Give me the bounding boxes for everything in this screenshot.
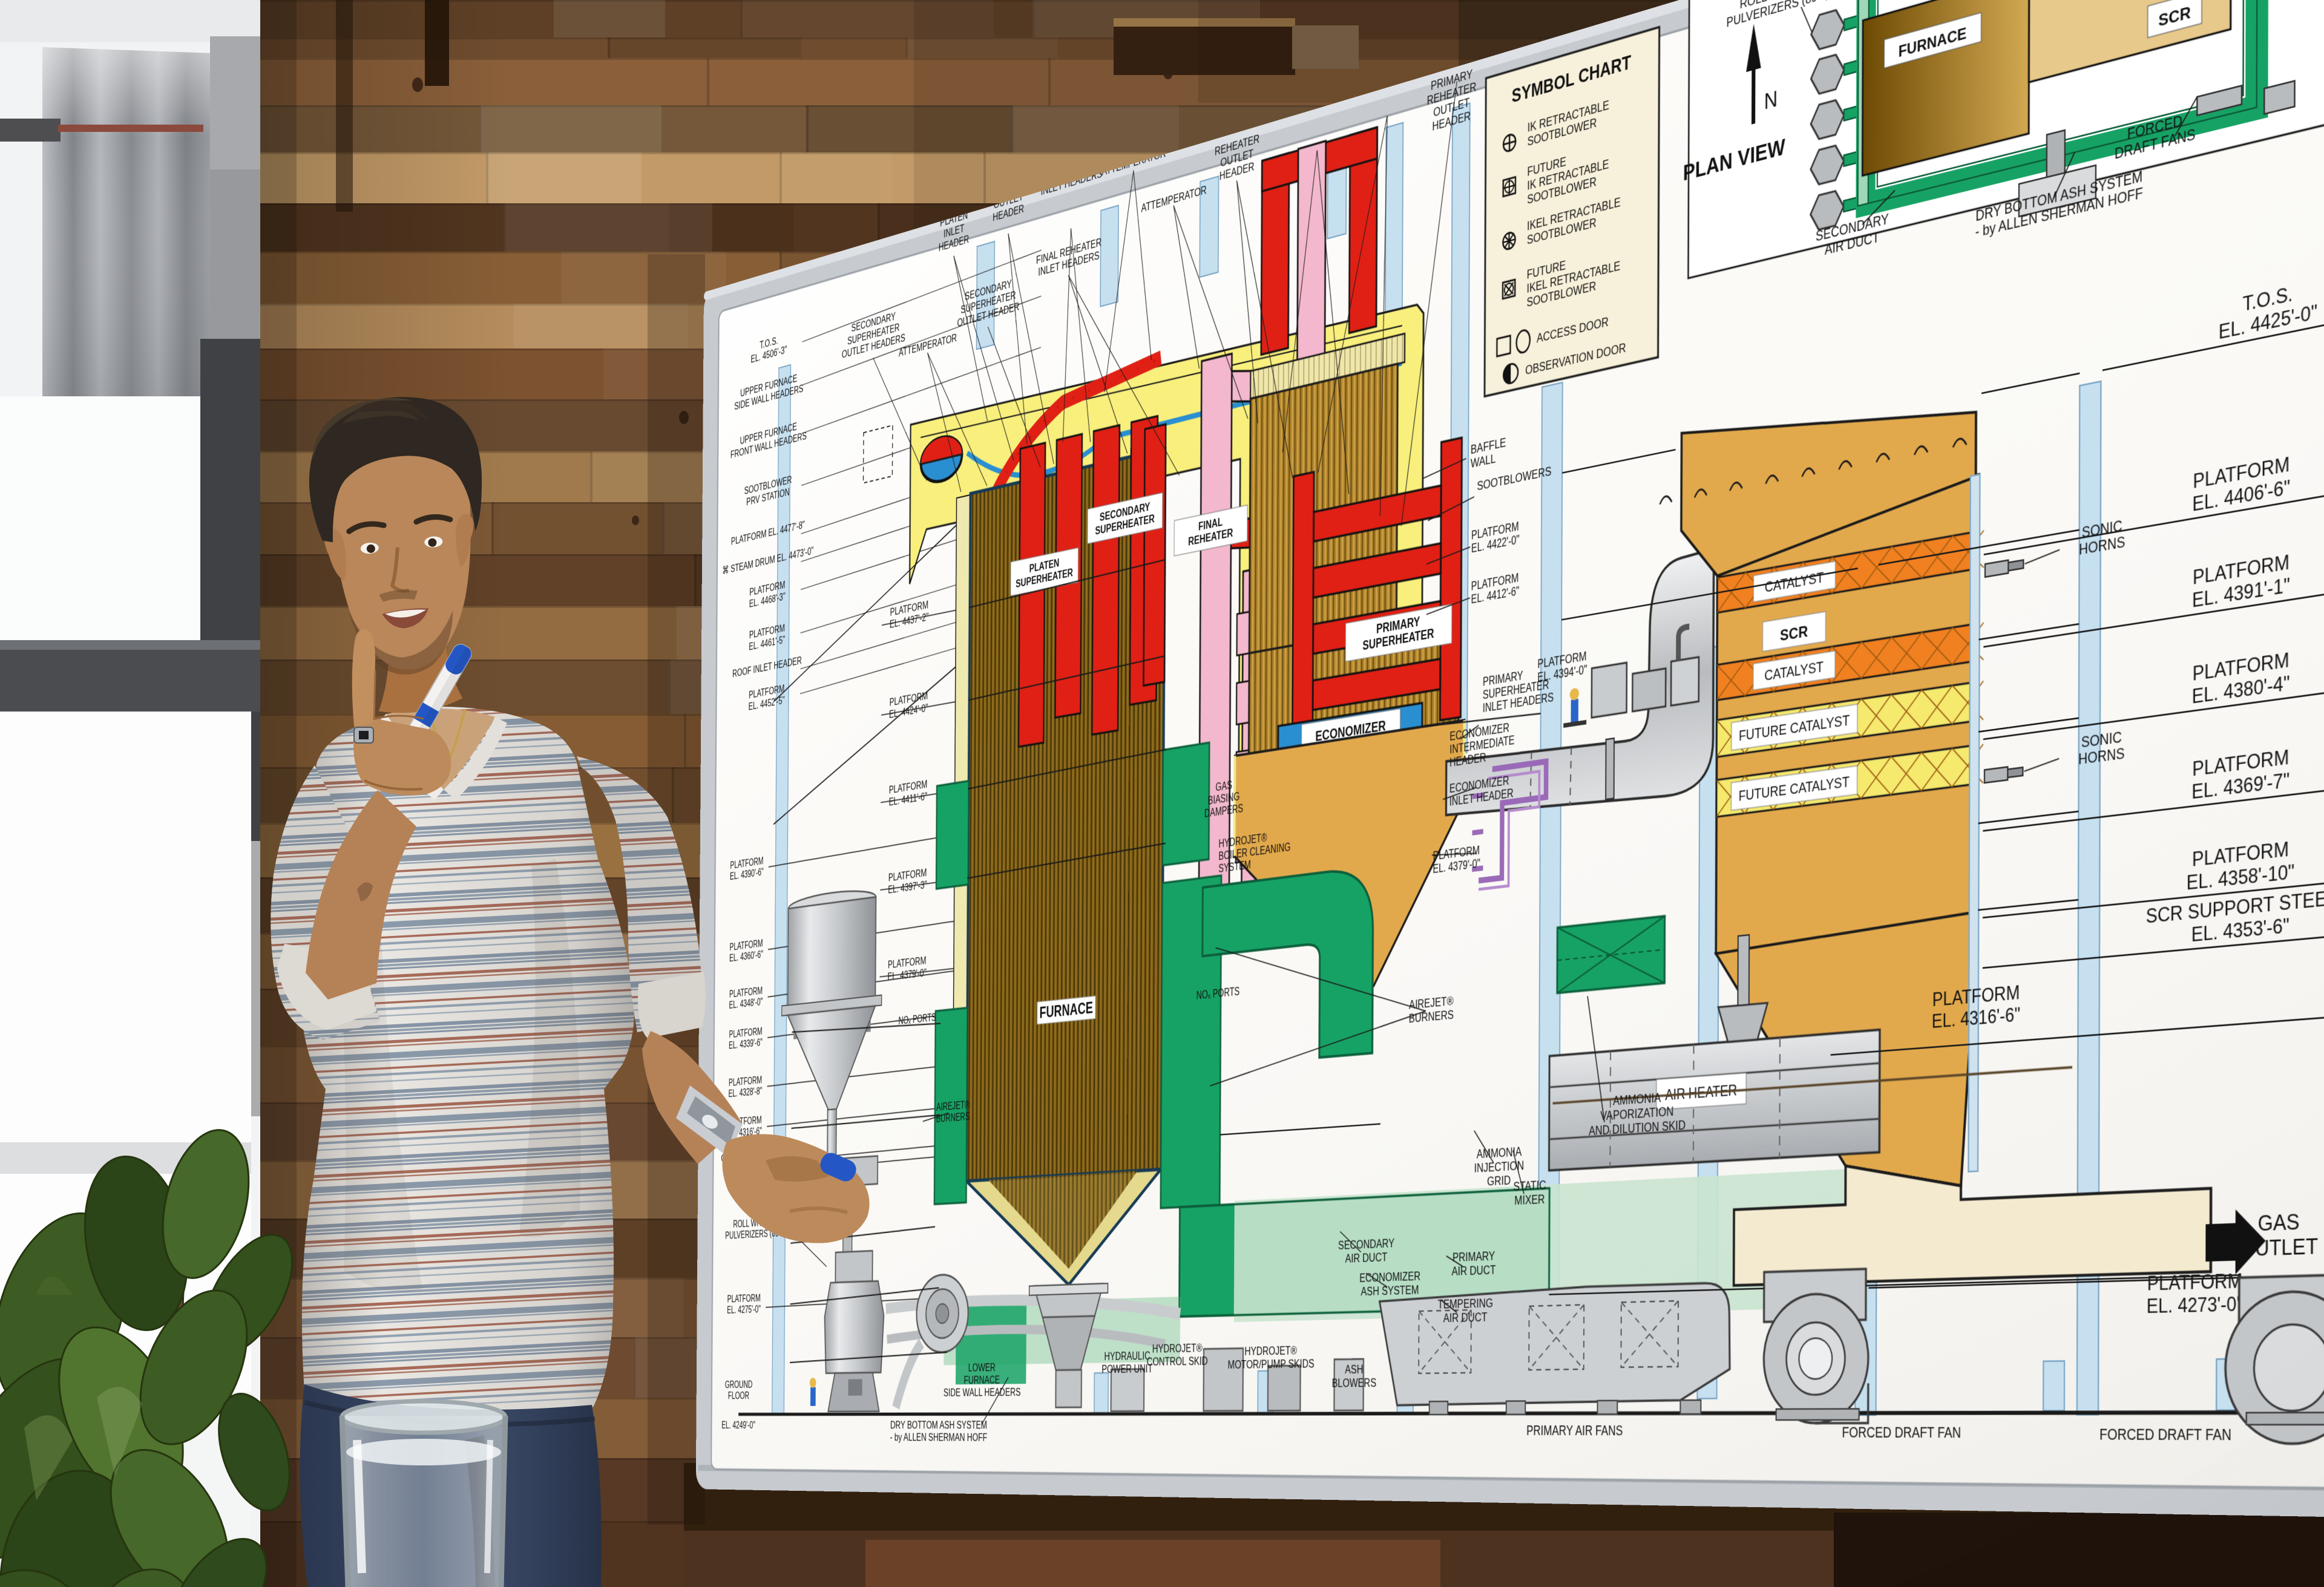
svg-text:POWER UNIT: POWER UNIT [1101,1362,1153,1375]
svg-text:STATIC: STATIC [1514,1178,1546,1194]
svg-text:PRIMARY: PRIMARY [1452,1249,1495,1265]
svg-text:MOTOR/PUMP SKIDS: MOTOR/PUMP SKIDS [1228,1357,1315,1371]
svg-text:EL. 4273'-0": EL. 4273'-0" [2147,1293,2244,1318]
svg-text:LOWER: LOWER [968,1361,996,1374]
svg-text:FURNACE: FURNACE [964,1373,1000,1386]
svg-text:FORCED DRAFT FAN: FORCED DRAFT FAN [2099,1427,2231,1444]
svg-text:FORCED DRAFT FAN: FORCED DRAFT FAN [1842,1425,1961,1442]
svg-text:CONTROL SKID: CONTROL SKID [1147,1355,1208,1368]
svg-text:HYDRAULIC: HYDRAULIC [1104,1349,1150,1363]
svg-text:ASH SYSTEM: ASH SYSTEM [1361,1283,1419,1298]
svg-text:ECONOMIZER: ECONOMIZER [1359,1269,1420,1284]
svg-text:GAS: GAS [2258,1210,2300,1236]
svg-text:ASH: ASH [1345,1363,1363,1376]
svg-text:HYDROJET®: HYDROJET® [1152,1341,1203,1355]
svg-text:OUTLET: OUTLET [2240,1234,2319,1261]
svg-text:SECONDARY: SECONDARY [1338,1237,1394,1252]
svg-text:AIR DUCT: AIR DUCT [1345,1251,1388,1266]
svg-text:GRID: GRID [1487,1173,1511,1188]
svg-text:SIDE WALL HEADERS: SIDE WALL HEADERS [944,1386,1021,1399]
svg-text:BURNERS: BURNERS [936,1110,970,1125]
svg-text:MIXER: MIXER [1514,1193,1544,1208]
svg-text:AIR DUCT: AIR DUCT [1451,1263,1496,1278]
svg-text:PRIMARY AIR FANS: PRIMARY AIR FANS [1526,1424,1623,1439]
svg-text:HYDROJET®: HYDROJET® [1244,1344,1297,1358]
svg-text:BLOWERS: BLOWERS [1332,1376,1376,1390]
svg-text:N: N [1764,86,1777,116]
svg-text:INJECTION: INJECTION [1474,1159,1525,1175]
svg-text:AIR DUCT: AIR DUCT [1443,1311,1488,1325]
